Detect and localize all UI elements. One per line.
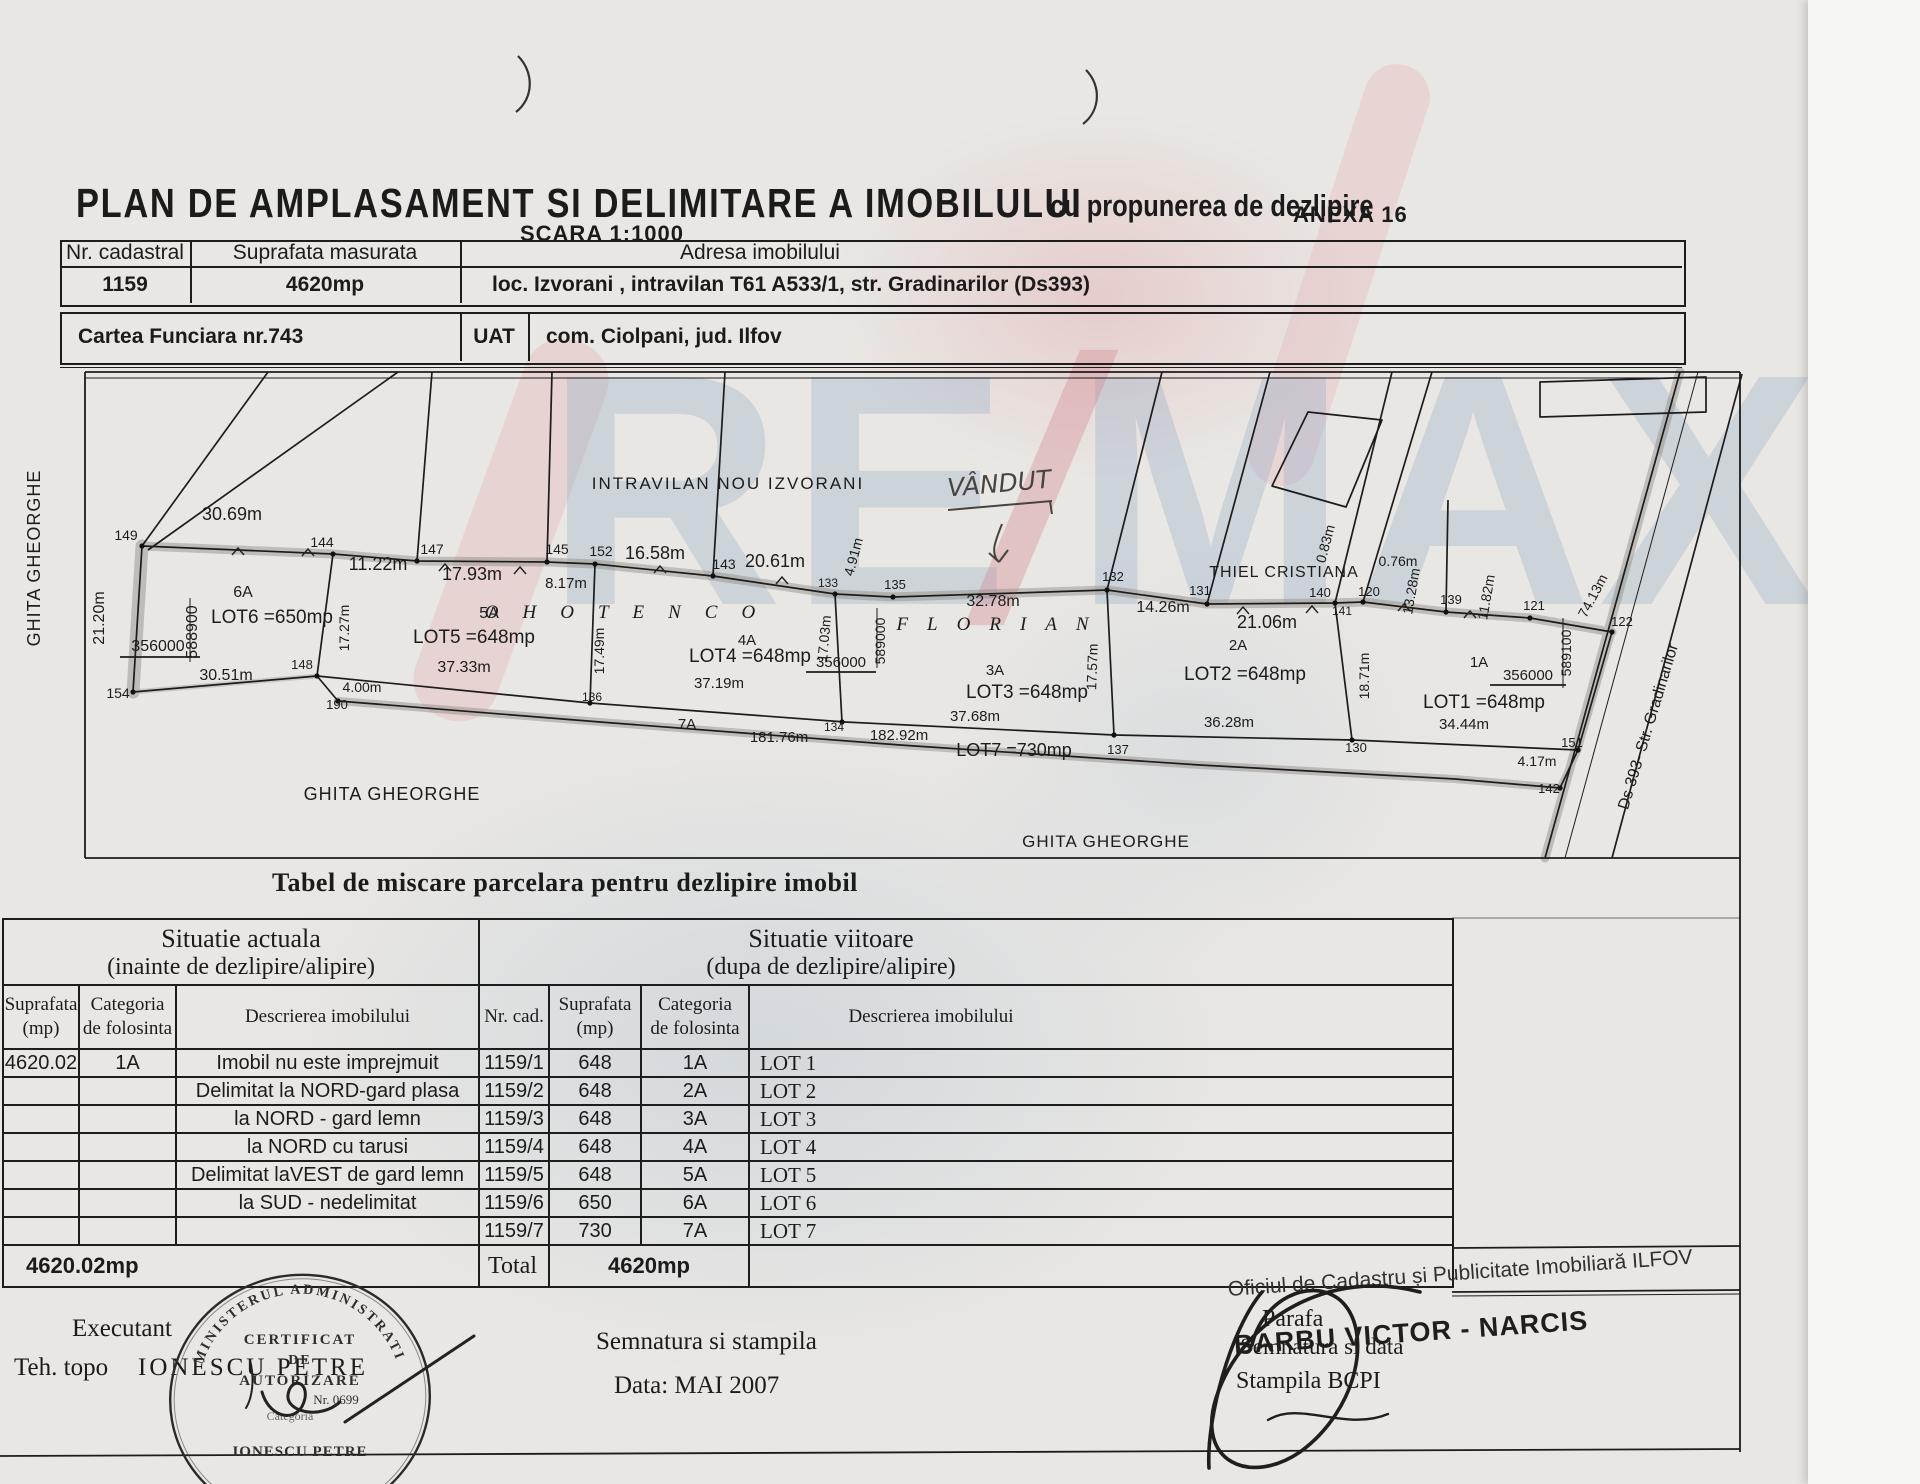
parcel-row: la SUD - nedelimitat1159/66506ALOT 6: [3, 1189, 1453, 1217]
group-current-line1: Situatie actuala: [4, 924, 478, 954]
cell-lot: LOT 7: [749, 1217, 1453, 1245]
executant-name: IONESCU PETRE: [138, 1354, 368, 1382]
plan-label: 139: [1440, 592, 1462, 607]
plan-label: 120: [1358, 584, 1380, 599]
cell-sup2: 648: [549, 1077, 641, 1105]
plan-label: 11.22m: [349, 554, 408, 574]
total-label: Total: [479, 1245, 549, 1287]
plan-label: 151: [1561, 735, 1583, 750]
data-label: Data: MAI 2007: [614, 1372, 779, 1400]
cell-sup: [3, 1133, 79, 1161]
plan-label: 74.13m: [1575, 571, 1611, 620]
cell-nr: 1159/5: [479, 1161, 549, 1189]
plan-label: 136: [582, 690, 602, 704]
plan-label: 4A: [738, 632, 756, 649]
parcel-table: Situatie actuala (inainte de dezlipire/a…: [2, 918, 1454, 1288]
cell-nr: 1159/3: [479, 1105, 549, 1133]
plan-label: LOT2 =648mp: [1184, 664, 1306, 685]
plan-label: VÂNDUT: [946, 464, 1054, 502]
cell-desc: Imobil nu este imprejmuit: [176, 1049, 479, 1077]
plan-label: 4.00m: [343, 679, 382, 695]
plan-label: 356000: [131, 638, 184, 655]
plan-label: 6A: [233, 584, 253, 601]
cell-sup2: 648: [549, 1105, 641, 1133]
plan-label: 18.71m: [1356, 653, 1372, 700]
plan-label: 149: [114, 527, 138, 543]
cell-sup2: 648: [549, 1133, 641, 1161]
cell-sup2: 650: [549, 1189, 641, 1217]
cell-nr: 1159/6: [479, 1189, 549, 1217]
col-descriere: Descrierea imobilului: [176, 985, 479, 1049]
plan-label: GHITA GHEORGHE: [24, 470, 44, 647]
survey-ticks: [232, 548, 1476, 618]
curl-mark-right: [1083, 70, 1097, 124]
plan-label: 17.57m: [1083, 643, 1101, 690]
plan-label: 21.06m: [1237, 612, 1297, 632]
plan-label: 135: [884, 577, 906, 592]
parcel-row: Delimitat laVEST de gard lemn1159/56485A…: [3, 1161, 1453, 1189]
document-title: PLAN DE AMPLASAMENT SI DELIMITARE A IMOB…: [76, 180, 1082, 227]
stamp-line5: Categoria: [267, 1409, 314, 1423]
plan-label: 1A: [1470, 654, 1488, 671]
cell-sup: [3, 1077, 79, 1105]
plan-label: 17.03m: [814, 615, 834, 663]
cell-cat: [79, 1189, 176, 1217]
group-future-line2: (dupa de dezlipire/alipire): [480, 954, 1182, 981]
cell-lot: LOT 1: [749, 1049, 1453, 1077]
plan-label: 589100: [1558, 629, 1574, 676]
plan-label: LOT6 =650mp: [211, 607, 333, 628]
cell-desc: la NORD - gard lemn: [176, 1105, 479, 1133]
cell-desc: Delimitat la NORD-gard plasa: [176, 1077, 479, 1105]
col-suprafata: Suprafata(mp): [3, 985, 79, 1049]
cell-cat2: 3A: [641, 1105, 749, 1133]
parcel-row: 4620.021AImobil nu este imprejmuit1159/1…: [3, 1049, 1453, 1077]
scan-edge-strip: [1808, 0, 1920, 1484]
cell-cat: [79, 1105, 176, 1133]
cell-sup: 4620.02: [3, 1049, 79, 1077]
cell-cat: [79, 1133, 176, 1161]
cell-lot: LOT 3: [749, 1105, 1453, 1133]
plan-label: GHITA GHEORGHE: [1022, 832, 1190, 851]
cell-nr: 1159/7: [479, 1217, 549, 1245]
cell-cat: [79, 1217, 176, 1245]
plan-label: 154: [106, 685, 130, 701]
col-categoria2: Categoriade folosinta: [641, 985, 749, 1049]
cell-cat: 1A: [79, 1049, 176, 1077]
cell-lot: LOT 6: [749, 1189, 1453, 1217]
group-current-line2: (inainte de dezlipire/alipire): [4, 954, 478, 981]
plan-label: 121: [1523, 598, 1545, 613]
plan-label: 137: [1107, 742, 1129, 757]
cell-nr: 1159/2: [479, 1077, 549, 1105]
group-future-line1: Situatie viitoare: [480, 924, 1182, 954]
cell-nr: 1159/4: [479, 1133, 549, 1161]
plan-label: 140: [1309, 585, 1331, 600]
nr-cadastral-value: 1159: [60, 268, 190, 301]
plan-label: 145: [545, 541, 569, 557]
pencil-shading: [133, 372, 1680, 858]
plan-label: 16.58m: [625, 543, 685, 563]
plan-label: 0.76m: [1379, 553, 1418, 569]
stamp-name: IONESCU PETRE: [232, 1444, 367, 1460]
col-descriere2: Descrierea imobilului: [749, 985, 1453, 1049]
parcel-row: la NORD - gard lemn1159/36483ALOT 3: [3, 1105, 1453, 1133]
plan-label: 17.93m: [442, 564, 502, 584]
plan-label: 4.91m: [840, 536, 866, 578]
cell-sup: [3, 1161, 79, 1189]
col-suprafata2: Suprafata(mp): [549, 985, 641, 1049]
cell-sup: [3, 1217, 79, 1245]
plan-label: LOT7 =730mp: [956, 740, 1072, 760]
uat-value: com. Ciolpani, jud. Ilfov: [546, 312, 1046, 361]
plan-label: 34.44m: [1439, 716, 1489, 733]
stampila-bcpi-label: Stampila BCPI: [1236, 1368, 1381, 1395]
plan-label: LOT4 =648mp: [689, 646, 811, 667]
suprafata-value: 4620mp: [190, 268, 460, 301]
watermark-blue-wash-mid: [930, 540, 1450, 970]
cell-desc: la NORD cu tarusi: [176, 1133, 479, 1161]
plan-label: 14.26m: [1136, 599, 1189, 616]
parcel-row: 1159/77307ALOT 7: [3, 1217, 1453, 1245]
parcel-table-title: Tabel de miscare parcelara pentru dezlip…: [272, 868, 858, 898]
cell-lot: LOT 5: [749, 1161, 1453, 1189]
adresa-value: loc. Izvorani , intravilan T61 A533/1, s…: [492, 268, 1592, 301]
watermark-max: MAX: [1073, 325, 1824, 655]
plan-label: 130: [1345, 740, 1367, 755]
plan-label: 7A: [678, 716, 696, 733]
plan-label: 37.33m: [437, 659, 490, 676]
col-categoria: Categoriade folosinta: [79, 985, 176, 1049]
stamp-line4: Nr. 0699: [313, 1392, 359, 1407]
plan-label: 32.78m: [966, 593, 1019, 610]
plan-label: INTRAVILAN NOU IZVORANI: [592, 474, 864, 493]
cell-desc: la SUD - nedelimitat: [176, 1189, 479, 1217]
plan-label: 17.27m: [336, 605, 352, 652]
adresa-header: Adresa imobilului: [460, 240, 1060, 266]
cell-sup2: 648: [549, 1161, 641, 1189]
plan-label: 17.49m: [591, 628, 607, 675]
anexa-label: ANEXA 16: [1293, 202, 1408, 228]
parcel-lines: [120, 372, 1742, 858]
cell-lot: LOT 2: [749, 1077, 1453, 1105]
plan-label: 133: [818, 576, 838, 590]
plan-label: Ds 393- Str. Gradinarilor: [1615, 641, 1682, 812]
stamp-line1: CERTIFICAT: [244, 1332, 357, 1348]
plan-label: 141: [1332, 604, 1352, 618]
plan-label: 131: [1189, 583, 1211, 598]
plan-label: 122: [1611, 614, 1633, 629]
plan-label: 143: [712, 556, 736, 572]
plan-label: 11.82m: [1474, 573, 1498, 621]
cell-cat2: 5A: [641, 1161, 749, 1189]
survey-points: [130, 543, 1614, 790]
plan-label: LOT5 =648mp: [413, 627, 535, 648]
cell-lot: LOT 4: [749, 1133, 1453, 1161]
suprafata-header: Suprafata masurata: [190, 240, 460, 266]
plan-label: 3A: [986, 662, 1004, 679]
plan-label: 147: [420, 541, 444, 557]
plan-label: 4.17m: [1518, 753, 1557, 769]
plan-label: 30.51m: [199, 667, 252, 684]
watermark-slash-left: [402, 327, 620, 732]
plan-label: 13.28m: [1399, 567, 1423, 616]
vandut-annotation: [948, 501, 1052, 562]
cell-cat: [79, 1077, 176, 1105]
cell-cat2: 1A: [641, 1049, 749, 1077]
parcel-row: Delimitat la NORD-gard plasa1159/26482AL…: [3, 1077, 1453, 1105]
plan-frame: [85, 372, 1740, 1452]
scanned-cadastral-plan: RE/MAX PLAN DE AMPLASAMENT SI DELIMITARE…: [0, 0, 1920, 1484]
plan-label: LOT3 =648mp: [966, 682, 1088, 703]
plan-label: THIEL CRISTIANA: [1209, 564, 1359, 581]
plan-label: 589000: [872, 617, 888, 664]
curl-mark-left: [516, 56, 530, 112]
column-header-row: Suprafata(mp) Categoriade folosinta Desc…: [3, 985, 1453, 1049]
cell-cat2: 7A: [641, 1217, 749, 1245]
group-current: Situatie actuala (inainte de dezlipire/a…: [3, 919, 479, 985]
cell-sup2: 730: [549, 1217, 641, 1245]
cell-nr: 1159/1: [479, 1049, 549, 1077]
executant-label: Executant: [72, 1315, 172, 1343]
plan-label: 20.61m: [745, 551, 805, 571]
plan-label: 37.68m: [950, 708, 1000, 725]
plan-label: GHITA GHEORGHE: [304, 784, 481, 804]
plan-label: FLORIAN: [895, 614, 1107, 635]
plan-label: 8.17m: [545, 575, 587, 592]
group-header-row: Situatie actuala (inainte de dezlipire/a…: [3, 919, 1453, 985]
cell-cat2: 2A: [641, 1077, 749, 1105]
total-value: 4620mp: [549, 1245, 749, 1287]
plan-label: 356000: [1503, 667, 1553, 684]
cell-cat: [79, 1161, 176, 1189]
plan-label: 356000: [816, 654, 866, 671]
semnatura-stampila-label: Semnatura si stampila: [596, 1328, 817, 1356]
cell-sup2: 648: [549, 1049, 641, 1077]
plan-label: LOT1 =648mp: [1423, 692, 1545, 713]
plan-label: 190: [326, 697, 348, 712]
plan-label: 142: [1538, 781, 1560, 796]
plan-label: 37.19m: [694, 675, 744, 692]
plan-label: 588900: [184, 605, 201, 658]
cell-desc: Delimitat laVEST de gard lemn: [176, 1161, 479, 1189]
cell-sup: [3, 1105, 79, 1133]
plan-label: 5A: [479, 605, 499, 622]
nr-cadastral-header: Nr. cadastral: [60, 240, 190, 266]
uat-label: UAT: [460, 312, 528, 361]
plan-label: 144: [310, 534, 334, 550]
parcel-row: la NORD cu tarusi1159/46484ALOT 4: [3, 1133, 1453, 1161]
total-suprafata-actuala: 4620.02mp: [3, 1245, 479, 1287]
cell-cat2: 4A: [641, 1133, 749, 1161]
cartea-funciara-label: Cartea Funciara nr.743: [78, 312, 458, 361]
cell-sup: [3, 1189, 79, 1217]
plan-label: 132: [1102, 569, 1124, 584]
plan-label: 0.83m: [1312, 523, 1338, 565]
plan-label: 182.92m: [870, 727, 928, 744]
plan-label: OHOTENCO: [485, 602, 779, 623]
cell-desc: [176, 1217, 479, 1245]
teh-topo-label: Teh. topo: [14, 1354, 108, 1382]
plan-label: 36.28m: [1204, 714, 1254, 731]
plan-label: 181.76m: [750, 729, 808, 746]
col-nr-cad: Nr. cad.: [479, 985, 549, 1049]
plan-label: 148: [291, 657, 313, 672]
plan-label: 2A: [1229, 637, 1247, 654]
cell-cat2: 6A: [641, 1189, 749, 1217]
group-future: Situatie viitoare (dupa de dezlipire/ali…: [479, 919, 1453, 985]
plan-label: 21.20m: [91, 591, 108, 644]
plan-label: 134: [824, 720, 844, 734]
plan-label: 152: [589, 543, 613, 559]
plan-label: 30.69m: [202, 504, 262, 524]
watermark-re: RE: [545, 325, 1015, 655]
